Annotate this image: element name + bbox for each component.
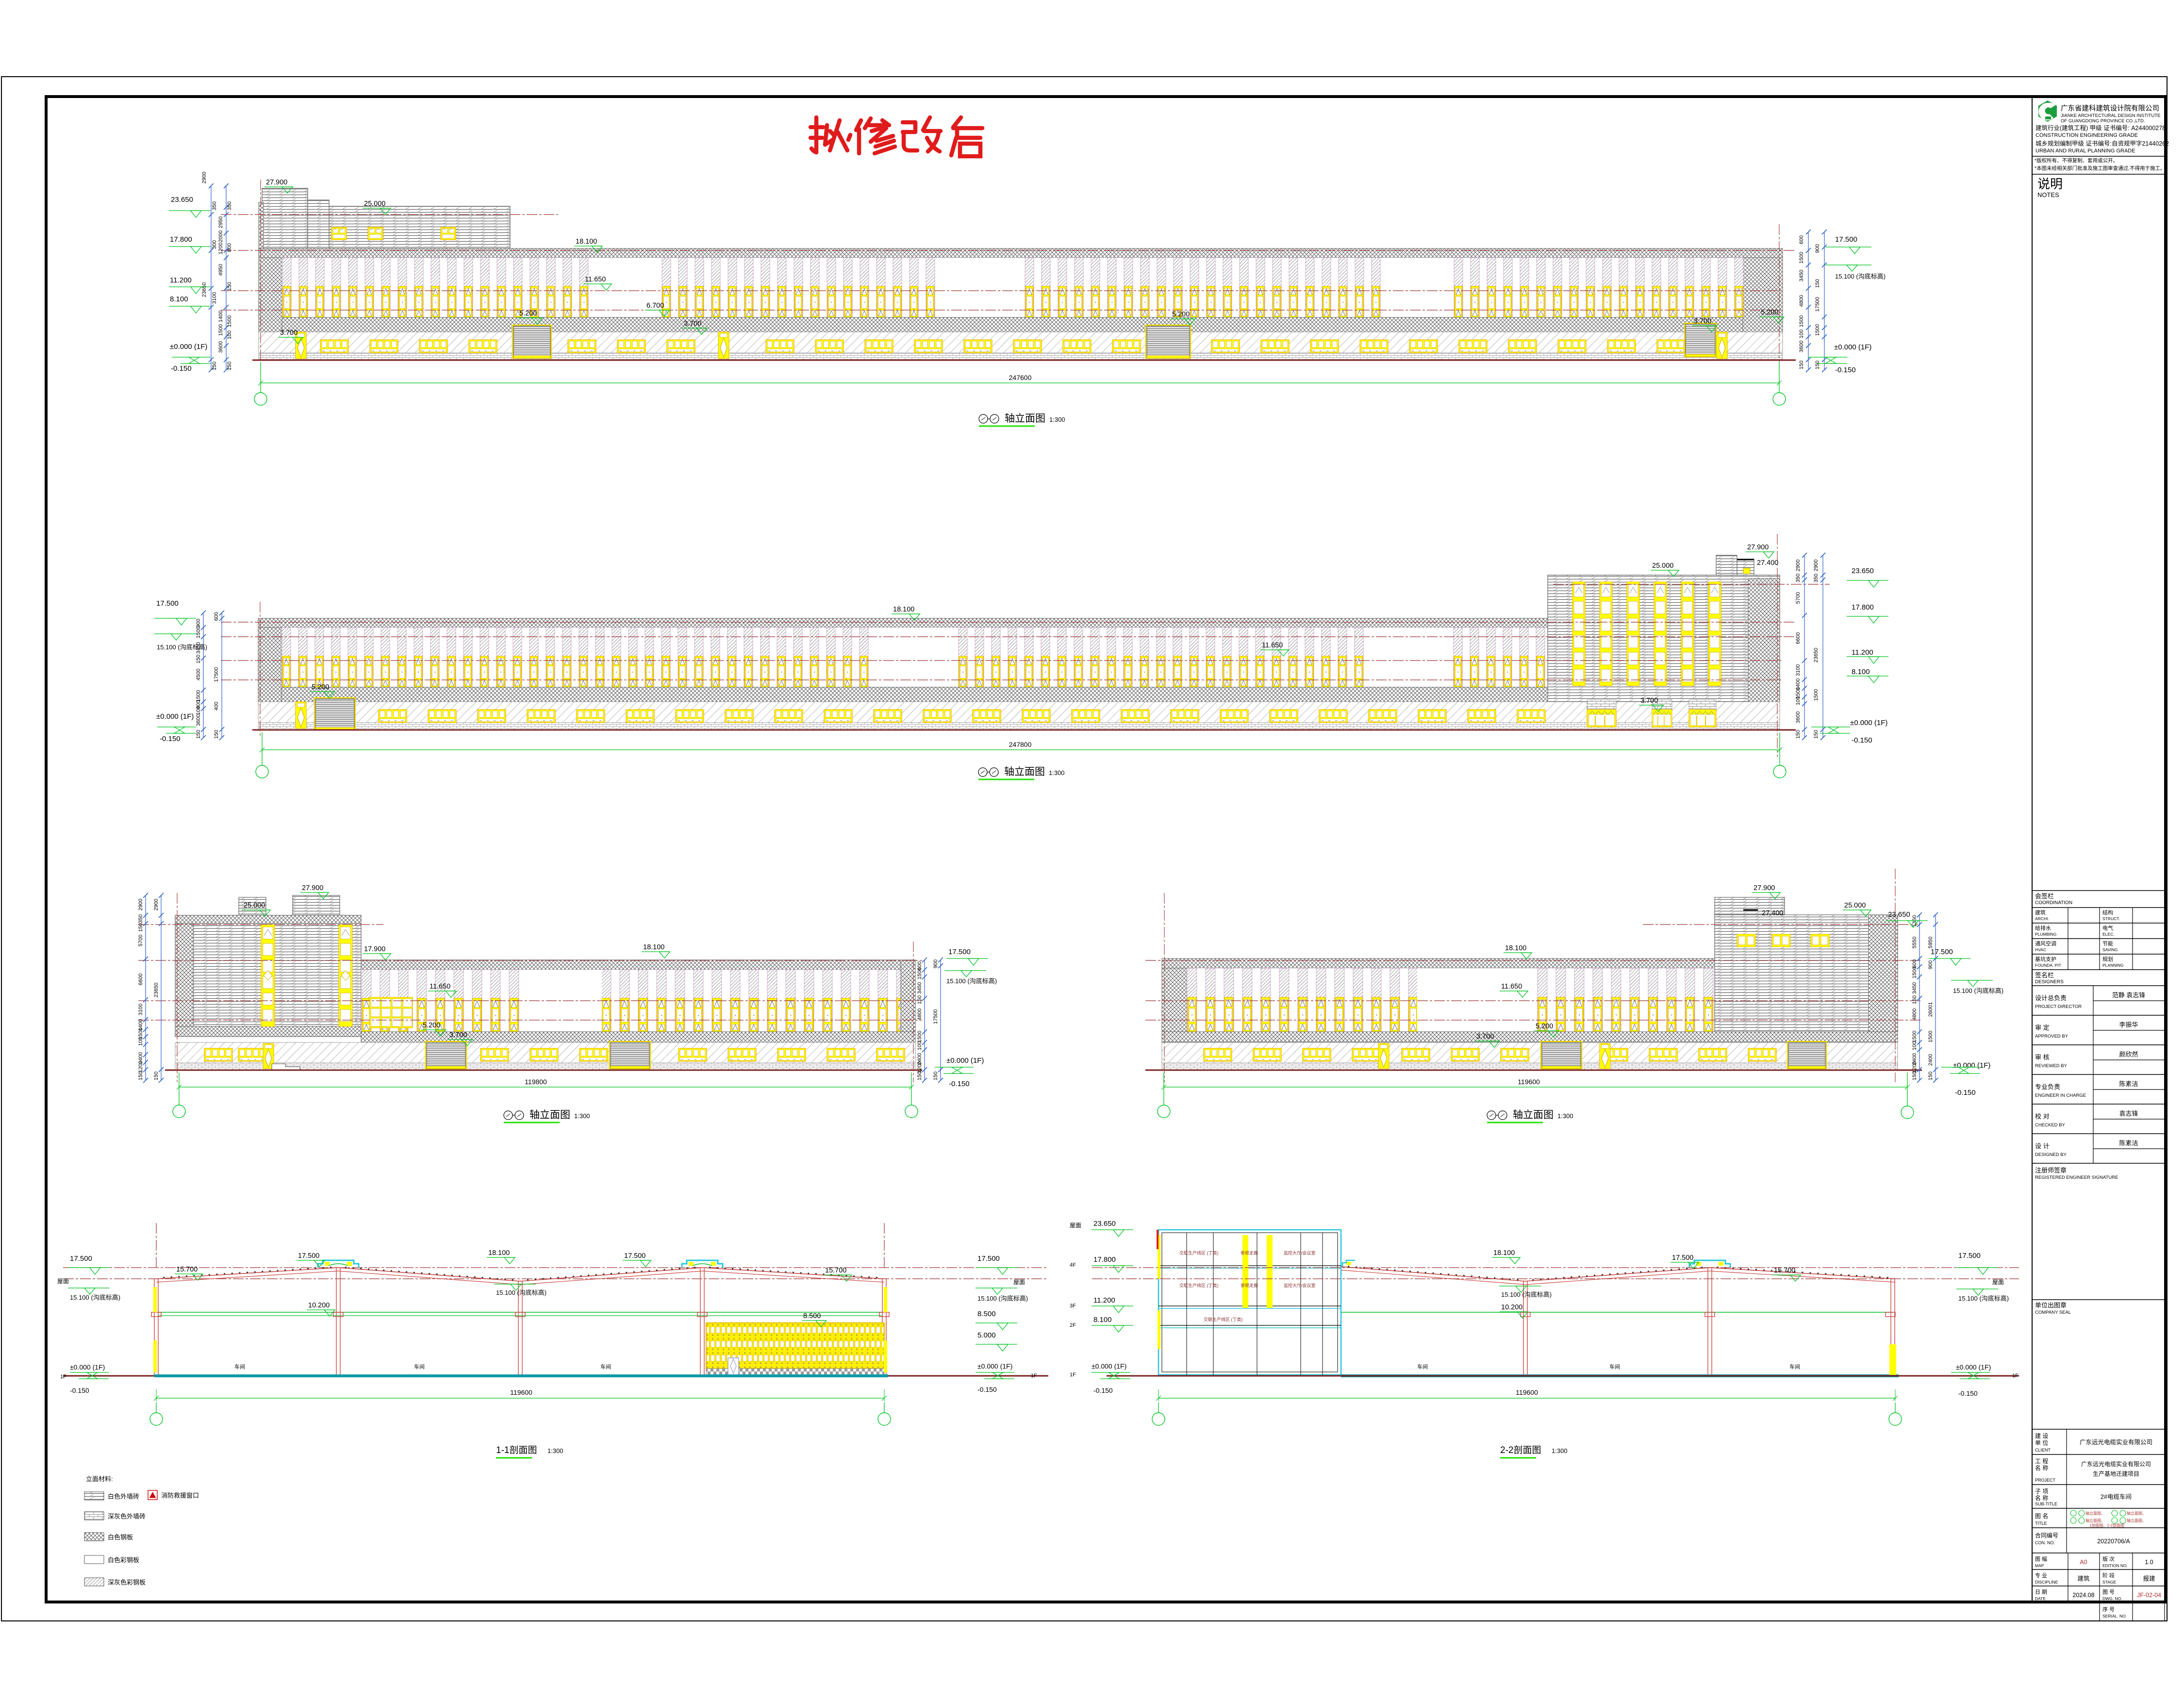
- svg-text:交联生产线区 (丁类): 交联生产线区 (丁类): [1179, 1283, 1219, 1288]
- svg-text:SAVING: SAVING: [2102, 947, 2118, 952]
- svg-text:NOTES: NOTES: [2037, 191, 2059, 198]
- svg-text:校 对: 校 对: [2035, 1113, 2050, 1120]
- svg-text:设计总负责: 设计总负责: [2035, 994, 2067, 1002]
- svg-text:广东省建科建筑设计院有限公司: 广东省建科建筑设计院有限公司: [2061, 104, 2159, 113]
- svg-text:2950: 2950: [218, 216, 224, 228]
- svg-text:STAGE: STAGE: [2102, 1580, 2117, 1585]
- svg-text:屋面: 屋面: [1070, 1222, 1081, 1229]
- svg-text:1500: 1500: [1813, 689, 1819, 701]
- svg-text:20220706/A: 20220706/A: [2097, 1538, 2130, 1545]
- svg-text:5.200: 5.200: [1761, 309, 1778, 316]
- svg-text:1500: 1500: [1928, 1031, 1934, 1042]
- svg-text:1:300: 1:300: [1552, 1447, 1568, 1454]
- svg-text:COMPANY SEAL: COMPANY SEAL: [2035, 1310, 2071, 1315]
- svg-text:±0.000 (1F): ±0.000 (1F): [70, 1363, 105, 1371]
- svg-text:11.200: 11.200: [1852, 648, 1873, 657]
- svg-text:25.000: 25.000: [1844, 902, 1866, 909]
- svg-text:-0.150: -0.150: [171, 364, 192, 373]
- svg-text:*版权所有、不得复制、套用或公开。: *版权所有、不得复制、套用或公开。: [2035, 157, 2118, 164]
- svg-text:交联生产线区 (丁类): 交联生产线区 (丁类): [1179, 1250, 1219, 1255]
- svg-text:1F: 1F: [2012, 1373, 2019, 1379]
- svg-text:车间: 车间: [600, 1363, 611, 1370]
- svg-text:18.100: 18.100: [1505, 944, 1526, 952]
- svg-text:1剖面图、2-2剖面图: 1剖面图、2-2剖面图: [2089, 1523, 2124, 1528]
- svg-text:1:300: 1:300: [1049, 769, 1065, 776]
- svg-text:3F: 3F: [1070, 1303, 1076, 1309]
- svg-text:15.100 (沟底标高): 15.100 (沟底标高): [1958, 1295, 2009, 1302]
- svg-text:17.800: 17.800: [170, 235, 192, 244]
- svg-text:版 次: 版 次: [2102, 1555, 2115, 1562]
- svg-text:-0.150: -0.150: [949, 1080, 970, 1088]
- svg-text:深灰色彩钢板: 深灰色彩钢板: [108, 1579, 146, 1586]
- svg-text:17500: 17500: [1815, 297, 1820, 312]
- svg-text:3.700: 3.700: [280, 329, 298, 337]
- svg-text:通风空调: 通风空调: [2035, 940, 2056, 947]
- svg-text:150: 150: [1799, 361, 1804, 369]
- svg-text:专业负责: 专业负责: [2035, 1083, 2060, 1090]
- svg-text:轴立面图、: 轴立面图、: [2127, 1511, 2146, 1516]
- svg-text:1F: 1F: [1070, 1372, 1076, 1378]
- svg-text:4800: 4800: [1912, 1008, 1918, 1020]
- svg-text:17.500: 17.500: [156, 599, 179, 608]
- svg-text:17.500: 17.500: [298, 1252, 319, 1260]
- svg-text:17.500: 17.500: [977, 1255, 1000, 1263]
- svg-text:广东远光电缆实业有限公司: 广东远光电缆实业有限公司: [2081, 1460, 2151, 1468]
- svg-text:900: 900: [933, 959, 939, 968]
- svg-text:-0.150: -0.150: [1852, 736, 1872, 744]
- svg-text:3600: 3600: [218, 341, 224, 353]
- svg-text:17.500: 17.500: [1931, 948, 1953, 956]
- svg-text:27.900: 27.900: [266, 179, 287, 186]
- svg-text:轴立面图、: 轴立面图、: [2085, 1518, 2105, 1523]
- svg-text:HVAC: HVAC: [2035, 947, 2046, 952]
- svg-text:DISCIPLINE: DISCIPLINE: [2035, 1580, 2058, 1585]
- svg-text:100: 100: [1912, 1041, 1918, 1050]
- svg-text:150: 150: [1815, 279, 1820, 288]
- svg-text:100: 100: [138, 1037, 144, 1046]
- svg-text:23650: 23650: [201, 282, 207, 297]
- svg-text:轴立面图: 轴立面图: [1005, 413, 1045, 424]
- svg-text:5700: 5700: [1795, 592, 1801, 604]
- svg-text:CON. NO.: CON. NO.: [2035, 1540, 2055, 1545]
- svg-text:袁志锋: 袁志锋: [2119, 1110, 2138, 1117]
- svg-text:15.700: 15.700: [825, 1267, 846, 1274]
- svg-text:PROJECT DIRECTOR: PROJECT DIRECTOR: [2035, 1004, 2082, 1009]
- svg-text:-0.150: -0.150: [1955, 1089, 1976, 1097]
- svg-text:1:300: 1:300: [1049, 416, 1065, 423]
- svg-text:150: 150: [138, 923, 144, 932]
- svg-text:1500: 1500: [227, 315, 232, 327]
- svg-text:±0.000 (1F): ±0.000 (1F): [1092, 1362, 1126, 1370]
- svg-text:150: 150: [196, 655, 201, 663]
- svg-text:6600: 6600: [1795, 632, 1801, 644]
- svg-text:URBAN AND RURAL PLANNING GRADE: URBAN AND RURAL PLANNING GRADE: [2035, 148, 2135, 154]
- svg-text:参观走廊: 参观走廊: [1241, 1283, 1258, 1288]
- svg-text:城乡规划编制甲级 证书编号:自资规甲字21440262: 城乡规划编制甲级 证书编号:自资规甲字21440262: [2035, 140, 2169, 147]
- svg-text:日 期: 日 期: [2035, 1589, 2047, 1595]
- svg-text:2400: 2400: [1928, 1054, 1934, 1066]
- svg-text:1500: 1500: [1815, 324, 1820, 336]
- svg-text:25.000: 25.000: [244, 902, 265, 909]
- svg-text:A0: A0: [2080, 1559, 2087, 1566]
- svg-text:2024.08: 2024.08: [2072, 1592, 2094, 1599]
- svg-text:17.800: 17.800: [1852, 603, 1874, 611]
- svg-text:8.500: 8.500: [977, 1310, 996, 1318]
- svg-text:PLANNING: PLANNING: [2102, 963, 2123, 968]
- svg-text:1500: 1500: [1912, 1031, 1918, 1042]
- svg-text:2900: 2900: [201, 172, 207, 183]
- svg-text:子 项: 子 项: [2035, 1488, 2048, 1495]
- svg-text:1500: 1500: [917, 968, 923, 979]
- svg-text:119800: 119800: [525, 1078, 547, 1086]
- svg-text:2900: 2900: [1795, 560, 1801, 571]
- svg-text:CONSTRUCTION ENGINEERING GRADE: CONSTRUCTION ENGINEERING GRADE: [2035, 132, 2138, 138]
- svg-text:DATE: DATE: [2035, 1596, 2046, 1601]
- svg-text:屋面: 屋面: [1013, 1279, 1025, 1286]
- svg-text:参观走廊: 参观走廊: [1241, 1250, 1258, 1255]
- svg-text:247600: 247600: [1009, 374, 1032, 381]
- svg-text:车间: 车间: [234, 1363, 245, 1370]
- svg-text:设 计: 设 计: [2035, 1142, 2050, 1150]
- svg-text:100: 100: [1799, 330, 1804, 338]
- svg-text:15.100 (沟底标高): 15.100 (沟底标高): [1501, 1291, 1552, 1298]
- svg-text:3450: 3450: [917, 982, 923, 994]
- svg-text:4950: 4950: [218, 264, 224, 276]
- svg-text:±0.000 (1F): ±0.000 (1F): [1956, 1363, 1991, 1371]
- svg-text:5.200: 5.200: [1172, 311, 1190, 318]
- svg-text:11.200: 11.200: [170, 276, 192, 284]
- svg-text:签名栏: 签名栏: [2035, 972, 2054, 979]
- svg-text:±0.000 (1F): ±0.000 (1F): [1850, 719, 1887, 727]
- svg-text:深灰色外墙砖: 深灰色外墙砖: [108, 1513, 146, 1520]
- svg-text:车间: 车间: [1789, 1363, 1800, 1370]
- svg-text:FOUNDA. PIT: FOUNDA. PIT: [2035, 963, 2061, 968]
- svg-text:15.100 (沟底标高): 15.100 (沟底标高): [157, 644, 207, 651]
- svg-text:100: 100: [1795, 696, 1801, 705]
- svg-text:-0.150: -0.150: [160, 735, 181, 743]
- svg-text:1200: 1200: [1912, 1061, 1918, 1073]
- svg-text:18.100: 18.100: [1493, 1249, 1515, 1257]
- svg-text:建筑行业(建筑工程) 甲级 证书编号: A24400027: 建筑行业(建筑工程) 甲级 证书编号: A244000278: [2035, 124, 2166, 132]
- svg-text:6600: 6600: [138, 974, 144, 985]
- svg-text:17.800: 17.800: [1093, 1255, 1116, 1264]
- svg-text:-0.150: -0.150: [1093, 1387, 1113, 1394]
- svg-text:150: 150: [1912, 1072, 1918, 1080]
- svg-text:建筑: 建筑: [2077, 1575, 2090, 1582]
- svg-text:1500: 1500: [218, 324, 224, 336]
- svg-text:工 程: 工 程: [2035, 1457, 2048, 1465]
- svg-text:150: 150: [227, 362, 232, 370]
- svg-text:18.100: 18.100: [576, 238, 597, 246]
- svg-text:白色外墙砖: 白色外墙砖: [108, 1493, 139, 1500]
- svg-text:27.900: 27.900: [302, 884, 323, 892]
- svg-text:规划: 规划: [2102, 956, 2113, 962]
- svg-text:±0.000 (1F): ±0.000 (1F): [156, 712, 194, 721]
- svg-text:轴立面图、: 轴立面图、: [2127, 1518, 2146, 1523]
- svg-text:节能: 节能: [2102, 940, 2113, 947]
- svg-text:800: 800: [227, 243, 232, 252]
- svg-text:5.200: 5.200: [1536, 1023, 1553, 1030]
- svg-text:陈素洁: 陈素洁: [2119, 1080, 2138, 1088]
- svg-text:ELEC.: ELEC.: [2102, 932, 2115, 937]
- svg-text:900: 900: [196, 619, 201, 628]
- svg-text:给排水: 给排水: [2035, 925, 2051, 931]
- svg-text:8.100: 8.100: [1852, 668, 1870, 676]
- svg-text:23.650: 23.650: [1852, 567, 1874, 575]
- svg-text:单位出图章: 单位出图章: [2035, 1302, 2067, 1309]
- svg-text:1-1剖面图: 1-1剖面图: [496, 1445, 537, 1455]
- svg-text:3.700: 3.700: [1476, 1033, 1494, 1040]
- svg-text:17.500: 17.500: [1958, 1252, 1981, 1260]
- svg-text:TITLE: TITLE: [2035, 1521, 2047, 1526]
- svg-text:轴立面图、: 轴立面图、: [2085, 1511, 2105, 1516]
- svg-text:150: 150: [1813, 730, 1819, 739]
- svg-text:审 定: 审 定: [2035, 1024, 2050, 1031]
- svg-text:150: 150: [917, 1072, 923, 1080]
- svg-text:150: 150: [153, 1072, 159, 1080]
- svg-text:3600: 3600: [196, 714, 201, 726]
- svg-text:150: 150: [1815, 361, 1820, 369]
- svg-text:白色钢板: 白色钢板: [108, 1534, 133, 1541]
- svg-text:1.0: 1.0: [2145, 1559, 2153, 1566]
- svg-text:23650: 23650: [1813, 648, 1819, 663]
- svg-text:2900: 2900: [1813, 560, 1819, 571]
- svg-text:5950: 5950: [1928, 937, 1934, 948]
- svg-text:17.500: 17.500: [948, 948, 971, 956]
- svg-text:5550: 5550: [1912, 937, 1918, 948]
- svg-text:-0.150: -0.150: [977, 1386, 997, 1393]
- svg-text:颜欣然: 颜欣然: [2119, 1051, 2138, 1058]
- svg-text:陈素洁: 陈素洁: [2119, 1140, 2138, 1147]
- svg-text:3100: 3100: [1795, 664, 1801, 676]
- svg-text:SERIAL. NO.: SERIAL. NO.: [2102, 1614, 2127, 1618]
- svg-text:27.900: 27.900: [1754, 884, 1775, 892]
- svg-text:100: 100: [196, 706, 201, 715]
- svg-text:消防救援窗口: 消防救援窗口: [161, 1492, 199, 1499]
- svg-text:名 称: 名 称: [2035, 1494, 2048, 1502]
- svg-text:350: 350: [1813, 574, 1819, 582]
- svg-text:5.000: 5.000: [977, 1331, 996, 1339]
- svg-text:8.100: 8.100: [170, 295, 188, 303]
- svg-text:*本图未经相关部门批准及施工图审查通过,不得用于施工。: *本图未经相关部门批准及施工图审查通过,不得用于施工。: [2035, 165, 2166, 171]
- svg-text:17.500: 17.500: [1835, 235, 1857, 244]
- svg-text:建 设: 建 设: [2035, 1433, 2048, 1439]
- svg-text:23.650: 23.650: [171, 196, 193, 204]
- svg-text:17.900: 17.900: [364, 945, 385, 953]
- svg-text:18.100: 18.100: [893, 606, 914, 613]
- svg-text:专 业: 专 业: [2035, 1572, 2047, 1579]
- svg-text:范静 袁志锋: 范静 袁志锋: [2112, 991, 2146, 999]
- svg-text:STRUCT.: STRUCT.: [2102, 916, 2120, 921]
- svg-text:150: 150: [196, 730, 201, 739]
- svg-text:3100: 3100: [212, 292, 217, 304]
- svg-text:100: 100: [917, 1041, 923, 1050]
- svg-text:±0.000 (1F): ±0.000 (1F): [1953, 1061, 1990, 1070]
- svg-text:1:300: 1:300: [574, 1112, 590, 1120]
- svg-text:15.100 (沟底标高): 15.100 (沟底标高): [496, 1289, 546, 1296]
- svg-text:±0.000 (1F): ±0.000 (1F): [977, 1362, 1012, 1370]
- svg-text:EDITION NO.: EDITION NO.: [2102, 1563, 2128, 1568]
- svg-text:350: 350: [227, 201, 232, 210]
- svg-text:5.200: 5.200: [423, 1022, 440, 1029]
- svg-text:PROJECT: PROJECT: [2035, 1478, 2056, 1483]
- svg-text:车间: 车间: [414, 1363, 425, 1370]
- svg-text:3450: 3450: [1912, 982, 1918, 994]
- svg-text:报建: 报建: [2143, 1575, 2155, 1582]
- svg-text:-0.150: -0.150: [1835, 366, 1856, 374]
- svg-text:图 名: 图 名: [2035, 1512, 2048, 1519]
- svg-text:4800: 4800: [1799, 295, 1804, 307]
- svg-text:李振华: 李振华: [2119, 1021, 2138, 1028]
- svg-text:车间: 车间: [1417, 1363, 1428, 1370]
- svg-text:3450: 3450: [1799, 270, 1804, 281]
- svg-text:2900: 2900: [153, 899, 159, 910]
- svg-text:CHECKED BY: CHECKED BY: [2035, 1123, 2065, 1128]
- svg-text:DESIGNED BY: DESIGNED BY: [2035, 1152, 2067, 1157]
- svg-text:17.500: 17.500: [70, 1255, 92, 1263]
- svg-text:屋面: 屋面: [57, 1278, 69, 1285]
- svg-text:±0.000 (1F): ±0.000 (1F): [1834, 343, 1871, 351]
- svg-text:车间: 车间: [1609, 1363, 1620, 1370]
- svg-text:15.700: 15.700: [176, 1266, 198, 1273]
- svg-text:100: 100: [227, 330, 232, 339]
- svg-text:-0.150: -0.150: [70, 1387, 89, 1394]
- svg-text:150: 150: [1795, 730, 1801, 739]
- svg-text:注册师签章: 注册师签章: [2035, 1167, 2067, 1174]
- svg-text:3.700: 3.700: [684, 320, 701, 328]
- svg-text:1200: 1200: [138, 1061, 144, 1073]
- svg-text:600: 600: [214, 612, 219, 621]
- svg-text:1200: 1200: [917, 1061, 923, 1073]
- svg-text:5.200: 5.200: [312, 683, 329, 691]
- svg-text:OF GUANGDONG PROVINCE CO.,LTD.: OF GUANGDONG PROVINCE CO.,LTD.: [2061, 118, 2145, 124]
- svg-text:27.400: 27.400: [1762, 909, 1783, 917]
- svg-text:25.000: 25.000: [364, 200, 385, 208]
- svg-text:17.500: 17.500: [1672, 1254, 1693, 1262]
- svg-text:350: 350: [212, 201, 217, 210]
- svg-text:150: 150: [212, 362, 217, 370]
- svg-text:17.500: 17.500: [624, 1252, 645, 1260]
- svg-text:900: 900: [1815, 244, 1820, 253]
- svg-text:广东远光电缆实业有限公司: 广东远光电缆实业有限公司: [2080, 1438, 2152, 1446]
- svg-text:25.000: 25.000: [1652, 562, 1673, 570]
- svg-text:17500: 17500: [933, 1009, 939, 1024]
- svg-text:17500: 17500: [214, 667, 219, 682]
- svg-text:11.650: 11.650: [585, 276, 606, 283]
- svg-text:400: 400: [214, 702, 219, 710]
- svg-text:结构: 结构: [2102, 909, 2113, 916]
- svg-text:JF-02-04: JF-02-04: [2137, 1592, 2161, 1599]
- svg-text:1500: 1500: [196, 690, 201, 702]
- svg-text:247800: 247800: [1009, 741, 1032, 748]
- svg-text:1:300: 1:300: [1557, 1112, 1573, 1120]
- svg-text:8.100: 8.100: [1093, 1316, 1112, 1324]
- svg-text:REVIEWED BY: REVIEWED BY: [2035, 1063, 2068, 1069]
- svg-text:1500: 1500: [1912, 967, 1918, 978]
- svg-text:1500: 1500: [917, 1031, 923, 1042]
- svg-text:图 号: 图 号: [2102, 1589, 2115, 1595]
- svg-text:DESIGNERS: DESIGNERS: [2035, 979, 2064, 985]
- svg-text:2000: 2000: [218, 231, 224, 242]
- svg-text:350: 350: [1795, 574, 1801, 582]
- svg-text:生产基地迁建项目: 生产基地迁建项目: [2093, 1470, 2139, 1477]
- svg-text:REGISTERED ENGINEER SIGNATURE: REGISTERED ENGINEER SIGNATURE: [2035, 1175, 2118, 1180]
- svg-text:4500: 4500: [196, 669, 201, 680]
- svg-text:150: 150: [214, 730, 219, 739]
- svg-text:4F: 4F: [1070, 1262, 1076, 1268]
- svg-text:ENGINEER IN CHARGE: ENGINEER IN CHARGE: [2035, 1093, 2086, 1098]
- svg-text:ARCHI.: ARCHI.: [2035, 916, 2049, 921]
- svg-text:1500: 1500: [1799, 252, 1804, 264]
- svg-text:150: 150: [1912, 995, 1918, 1004]
- svg-text:±0.000 (1F): ±0.000 (1F): [170, 343, 207, 351]
- svg-text:监控大厅/会议室: 监控大厅/会议室: [1284, 1283, 1316, 1288]
- svg-text:300: 300: [212, 240, 217, 249]
- svg-text:6.700: 6.700: [646, 302, 664, 310]
- svg-text:150: 150: [917, 995, 923, 1004]
- svg-text:11.650: 11.650: [430, 983, 450, 991]
- svg-text:11.650: 11.650: [1262, 642, 1283, 649]
- svg-text:18.100: 18.100: [488, 1249, 510, 1257]
- svg-text:白色彩钢板: 白色彩钢板: [108, 1556, 139, 1564]
- svg-text:立面材料:: 立面材料:: [86, 1475, 113, 1483]
- svg-text:JIANKE ARCHITECTURAL DESIGN IN: JIANKE ARCHITECTURAL DESIGN INSTITUTE: [2061, 113, 2161, 118]
- svg-text:轴立面图: 轴立面图: [1513, 1109, 1554, 1121]
- svg-text:1:300: 1:300: [547, 1447, 563, 1454]
- svg-text:350: 350: [138, 914, 144, 923]
- svg-text:15.100 (沟底标高): 15.100 (沟底标高): [977, 1295, 1028, 1302]
- svg-text:3.700: 3.700: [1694, 317, 1711, 325]
- svg-text:150: 150: [227, 282, 232, 291]
- svg-text:1F: 1F: [60, 1374, 66, 1380]
- svg-text:APPROVED BY: APPROVED BY: [2035, 1034, 2068, 1039]
- svg-text:150: 150: [138, 1072, 144, 1080]
- svg-text:3.700: 3.700: [449, 1031, 467, 1039]
- svg-text:119600: 119600: [1518, 1078, 1540, 1086]
- svg-text:轴立面图: 轴立面图: [1004, 766, 1045, 777]
- svg-text:11.200: 11.200: [1093, 1296, 1115, 1305]
- svg-text:MAP: MAP: [2035, 1563, 2044, 1568]
- svg-text:5700: 5700: [138, 935, 144, 946]
- svg-text:27.900: 27.900: [1747, 544, 1769, 551]
- svg-text:3600: 3600: [1795, 711, 1801, 723]
- svg-text:10.200: 10.200: [308, 1302, 330, 1309]
- svg-text:COORDINATION: COORDINATION: [2035, 900, 2072, 906]
- svg-text:单 位: 单 位: [2035, 1439, 2048, 1446]
- svg-text:监控大厅/会议室: 监控大厅/会议室: [1284, 1250, 1316, 1255]
- svg-text:5.200: 5.200: [519, 310, 537, 317]
- svg-text:15.100 (沟底标高): 15.100 (沟底标高): [946, 977, 997, 985]
- svg-text:15.700: 15.700: [1774, 1267, 1795, 1274]
- svg-text:119600: 119600: [1516, 1388, 1538, 1396]
- svg-text:600: 600: [1799, 235, 1804, 244]
- svg-text:SUB-TITLE: SUB-TITLE: [2035, 1502, 2057, 1506]
- svg-text:±0.000 (1F): ±0.000 (1F): [946, 1057, 984, 1065]
- svg-text:2#电缆车间: 2#电缆车间: [2101, 1493, 2132, 1501]
- svg-text:审 核: 审 核: [2035, 1054, 2050, 1061]
- svg-text:23.650: 23.650: [1093, 1220, 1116, 1228]
- svg-text:3100: 3100: [138, 1004, 144, 1015]
- svg-text:2900: 2900: [138, 899, 144, 910]
- svg-text:11.650: 11.650: [1501, 983, 1522, 991]
- svg-text:说明: 说明: [2037, 177, 2063, 191]
- svg-text:1500: 1500: [1799, 315, 1804, 327]
- svg-text:8.500: 8.500: [803, 1312, 821, 1320]
- svg-text:-0.150: -0.150: [1958, 1389, 1978, 1397]
- svg-text:10.200: 10.200: [1501, 1304, 1522, 1311]
- svg-text:119600: 119600: [510, 1388, 532, 1396]
- svg-text:序 号: 序 号: [2102, 1606, 2115, 1613]
